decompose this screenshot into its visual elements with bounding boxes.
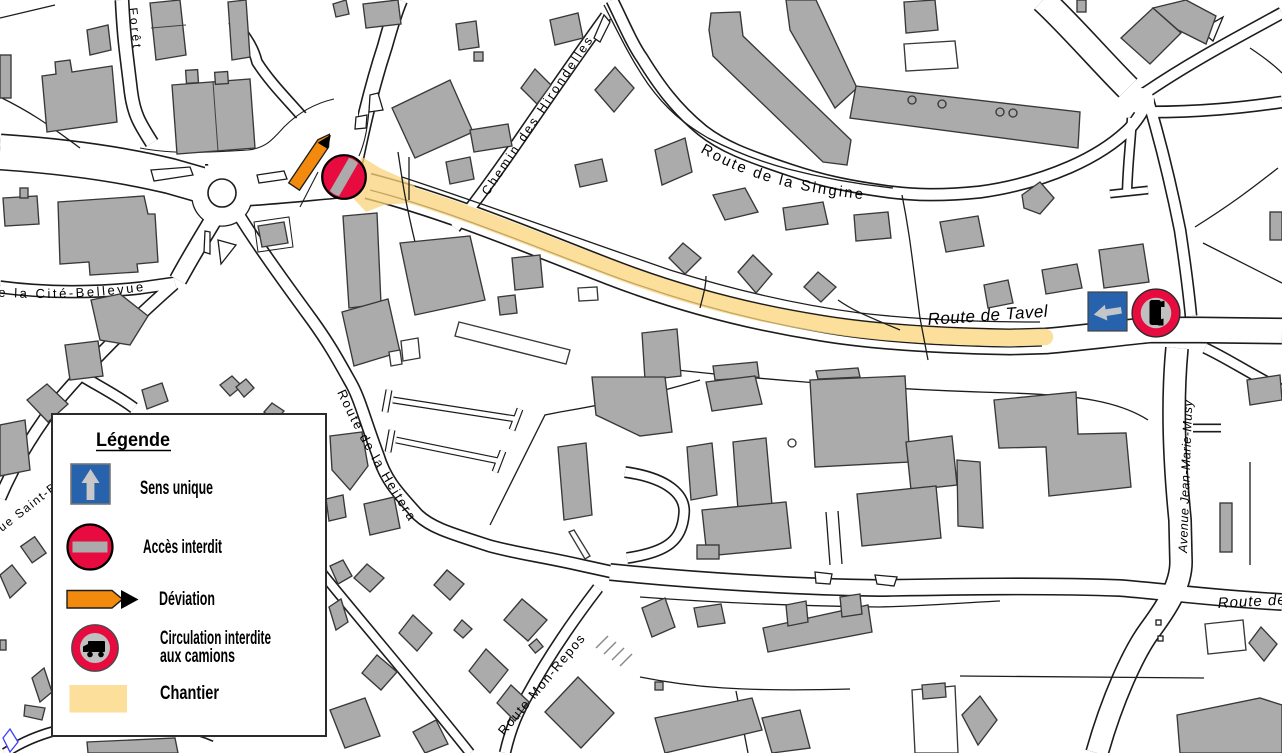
svg-text:aux camions: aux camions [160,646,235,667]
svg-text:Chantier: Chantier [160,683,219,704]
svg-text:Légende: Légende [96,430,170,451]
svg-text:Accès interdit: Accès interdit [143,537,222,558]
svg-text:Route de: Route de [1217,591,1282,612]
svg-text:Déviation: Déviation [159,589,215,610]
svg-text:Sens unique: Sens unique [140,478,213,499]
